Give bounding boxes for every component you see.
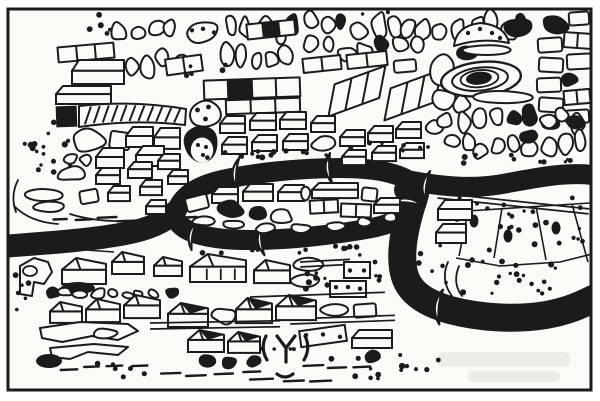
building-3d [146, 200, 166, 214]
building-3d [72, 60, 124, 84]
building-3d [278, 185, 304, 201]
building-block [361, 187, 377, 201]
building-3d [96, 148, 124, 168]
solid-building [166, 289, 178, 298]
building-3d [372, 146, 396, 161]
solid-building [505, 20, 532, 37]
print-bleed [468, 371, 560, 382]
building-block [569, 11, 590, 25]
building-block [384, 213, 396, 222]
row-houses [563, 89, 590, 105]
long-block [33, 202, 64, 212]
building-3d [126, 127, 153, 147]
print-bleed [438, 352, 570, 367]
solid-building [567, 116, 584, 128]
building-3d [374, 198, 400, 213]
building-block [358, 217, 372, 226]
building-3d [342, 150, 366, 165]
solid-building [366, 351, 380, 363]
row-houses [564, 32, 592, 49]
building-block [539, 57, 564, 72]
building-3d [96, 168, 120, 184]
building-block [538, 37, 563, 53]
solid-building [247, 356, 260, 366]
building-3d [252, 135, 277, 151]
dotted-block [190, 101, 221, 127]
building-3d [168, 170, 188, 184]
building-block [394, 59, 417, 73]
building-3d [340, 130, 365, 146]
building-3d [250, 113, 276, 130]
hole-outline [23, 266, 37, 276]
map-figure [0, 0, 600, 401]
building-3d [108, 186, 130, 201]
row-houses [310, 199, 339, 213]
building-block [94, 329, 118, 339]
building-block [271, 209, 292, 223]
building-block [567, 53, 592, 69]
building-3d [352, 330, 392, 348]
building-3d [311, 116, 335, 132]
row-houses [341, 203, 371, 217]
building-3d [56, 86, 111, 104]
solid-building [223, 358, 236, 369]
building-3d [158, 154, 180, 169]
building-block [256, 223, 275, 233]
hatched-strip [56, 104, 186, 128]
building-3d [312, 183, 358, 198]
river-junction [392, 220, 416, 260]
long-block [293, 258, 323, 271]
building-block [327, 222, 346, 231]
city-map-illustration [0, 0, 600, 401]
building-block [301, 187, 310, 201]
building-block [192, 216, 214, 225]
solid-building [250, 207, 266, 219]
building-3d [243, 184, 273, 201]
row-houses [204, 77, 301, 99]
building-block [79, 189, 99, 205]
building-3d [220, 116, 245, 133]
tree [552, 222, 561, 235]
tree [504, 230, 513, 243]
building-3d [283, 134, 308, 150]
row-houses [346, 51, 387, 69]
building-3d [128, 162, 152, 178]
building-block [291, 224, 310, 233]
building-3d [368, 126, 393, 142]
building-3d [280, 112, 306, 129]
building-3d [140, 180, 162, 195]
pond [36, 354, 62, 368]
long-block [25, 189, 63, 201]
solid-building [200, 355, 216, 366]
building-3d [396, 122, 421, 138]
long-block [320, 304, 348, 316]
orchard-plot [344, 262, 370, 278]
row-houses [302, 55, 341, 73]
building-block [223, 221, 244, 229]
building-3d [436, 224, 466, 243]
solid-building [520, 131, 537, 143]
building-3d [438, 200, 472, 220]
building-block [537, 78, 561, 93]
